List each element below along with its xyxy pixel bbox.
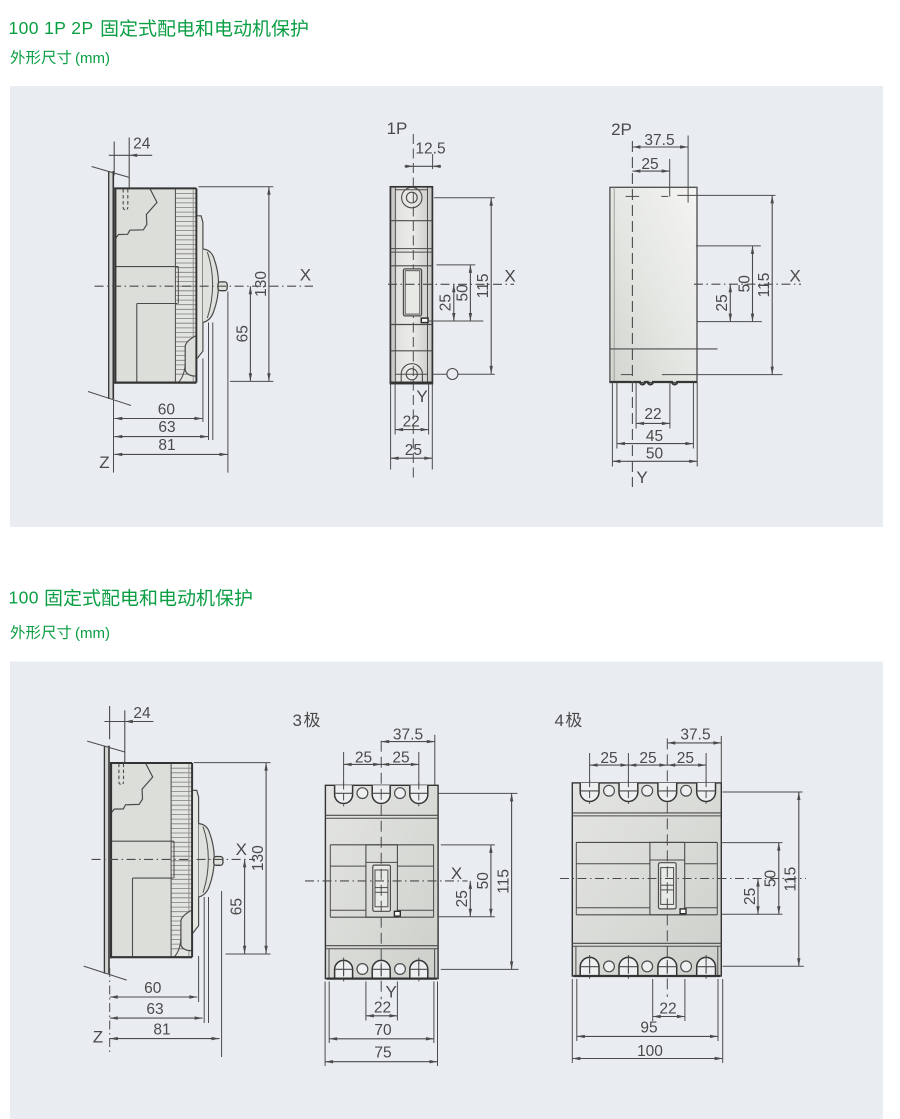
svg-text:130: 130 <box>250 845 267 871</box>
svg-text:37.5: 37.5 <box>393 727 423 744</box>
svg-text:1P: 1P <box>387 119 408 138</box>
svg-text:100 1P 2P: 100 1P 2P <box>9 18 94 38</box>
svg-text:(mm): (mm) <box>75 625 110 642</box>
svg-text:22: 22 <box>374 999 391 1016</box>
svg-text:45: 45 <box>646 428 663 445</box>
svg-text:75: 75 <box>374 1044 391 1061</box>
svg-text:60: 60 <box>158 401 176 418</box>
svg-text:Y: Y <box>636 468 647 487</box>
svg-text:2P: 2P <box>611 120 632 139</box>
svg-text:37.5: 37.5 <box>644 132 674 149</box>
svg-text:100: 100 <box>9 587 39 607</box>
svg-text:25: 25 <box>742 888 759 905</box>
svg-text:63: 63 <box>158 419 175 436</box>
svg-text:25: 25 <box>714 294 731 311</box>
svg-text:25: 25 <box>355 749 372 766</box>
svg-text:115: 115 <box>496 869 513 894</box>
svg-text:12.5: 12.5 <box>415 140 445 157</box>
svg-text:X: X <box>300 266 311 285</box>
svg-text:X: X <box>236 840 247 859</box>
svg-text:22: 22 <box>659 1000 676 1017</box>
svg-text:100: 100 <box>637 1043 663 1060</box>
svg-text:60: 60 <box>144 980 162 997</box>
svg-text:25: 25 <box>454 890 471 907</box>
svg-text:115: 115 <box>783 867 800 892</box>
svg-text:Z: Z <box>93 1028 103 1047</box>
svg-text:50: 50 <box>646 446 664 463</box>
svg-text:81: 81 <box>153 1022 170 1039</box>
svg-text:25: 25 <box>405 442 422 459</box>
svg-text:Z: Z <box>99 453 109 472</box>
svg-text:50: 50 <box>454 284 471 302</box>
svg-text:95: 95 <box>640 1019 657 1036</box>
svg-text:50: 50 <box>475 872 492 890</box>
svg-text:X: X <box>790 266 801 285</box>
svg-text:(mm): (mm) <box>75 50 110 67</box>
svg-text:115: 115 <box>756 273 773 298</box>
svg-text:65: 65 <box>234 325 251 342</box>
svg-text:24: 24 <box>133 136 151 153</box>
svg-text:25: 25 <box>438 294 455 311</box>
svg-text:50: 50 <box>736 275 753 293</box>
svg-text:130: 130 <box>253 271 270 297</box>
svg-text:22: 22 <box>644 406 661 423</box>
svg-text:22: 22 <box>403 413 420 430</box>
svg-text:37.5: 37.5 <box>680 727 710 744</box>
svg-text:4: 4 <box>555 711 564 730</box>
svg-text:25: 25 <box>677 750 694 767</box>
svg-text:81: 81 <box>158 437 175 454</box>
svg-text:Y: Y <box>416 387 427 406</box>
svg-text:115: 115 <box>475 274 492 299</box>
svg-text:70: 70 <box>374 1022 392 1039</box>
svg-text:3: 3 <box>293 711 302 730</box>
svg-text:X: X <box>451 864 462 883</box>
svg-text:X: X <box>504 266 515 285</box>
svg-text:25: 25 <box>641 156 658 173</box>
svg-text:25: 25 <box>639 750 656 767</box>
svg-text:65: 65 <box>229 898 246 915</box>
svg-text:24: 24 <box>133 705 151 722</box>
svg-text:25: 25 <box>600 750 617 767</box>
svg-text:63: 63 <box>146 1001 163 1018</box>
svg-text:25: 25 <box>392 749 409 766</box>
